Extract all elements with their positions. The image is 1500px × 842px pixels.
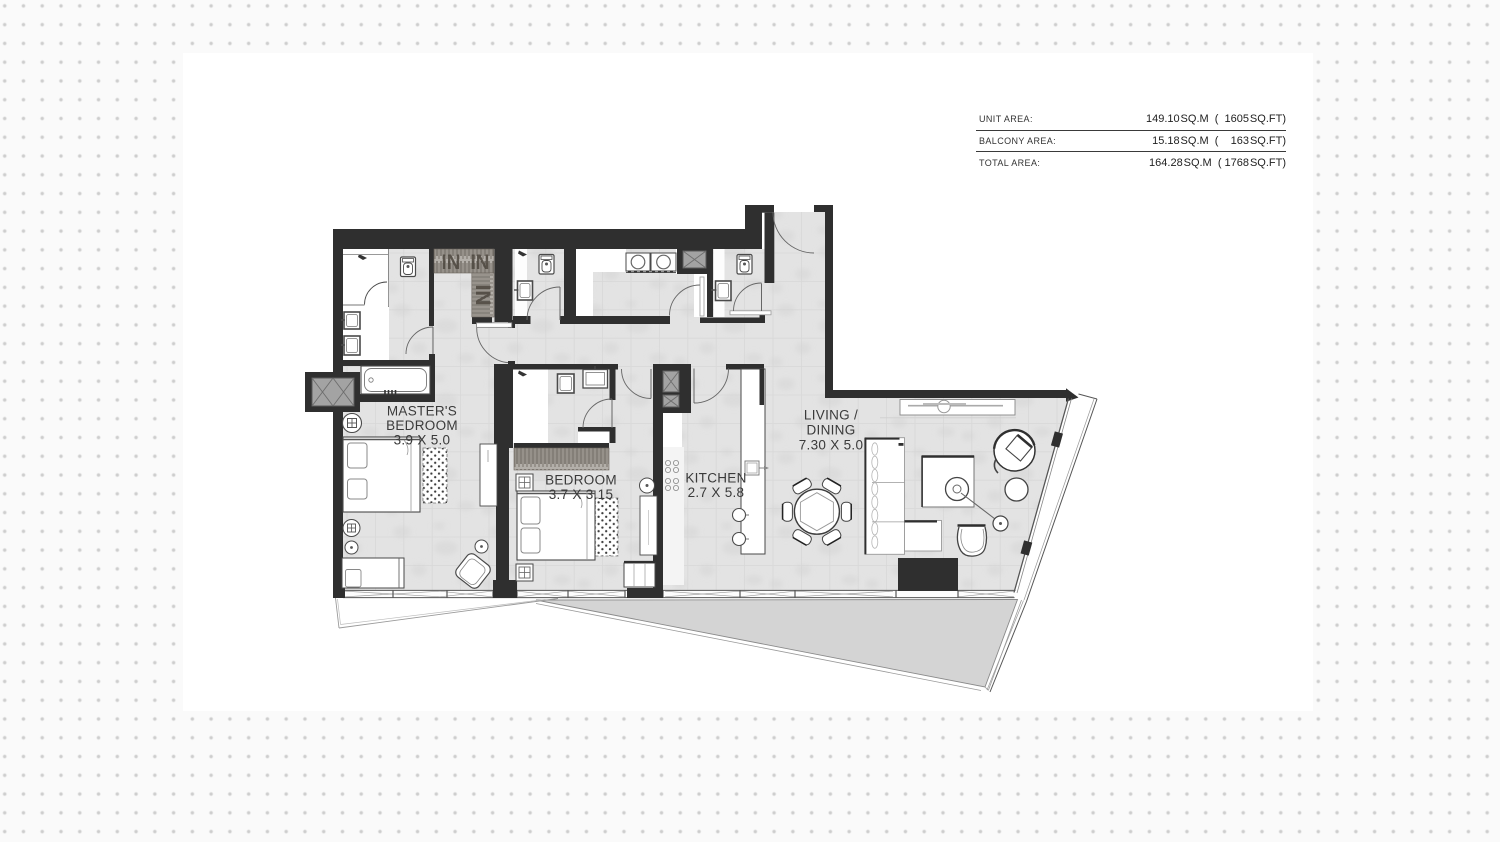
svg-text:2.7 X 5.8: 2.7 X 5.8 [688, 485, 745, 500]
svg-text:MASTER'S: MASTER'S [387, 404, 457, 419]
svg-text:IN: IN [471, 251, 490, 274]
svg-text:3.9 X 5.0: 3.9 X 5.0 [394, 433, 451, 448]
svg-text:7.30 X 5.0: 7.30 X 5.0 [799, 438, 864, 453]
svg-text:3.7 X 3.15: 3.7 X 3.15 [549, 487, 614, 502]
svg-text:IN: IN [471, 285, 494, 306]
svg-text:BEDROOM: BEDROOM [386, 418, 458, 433]
svg-text:IN: IN [442, 251, 461, 274]
svg-text:KITCHEN: KITCHEN [685, 471, 746, 486]
svg-text:DINING: DINING [806, 423, 855, 438]
svg-text:LIVING /: LIVING / [804, 408, 858, 423]
svg-text:BEDROOM: BEDROOM [545, 473, 617, 488]
